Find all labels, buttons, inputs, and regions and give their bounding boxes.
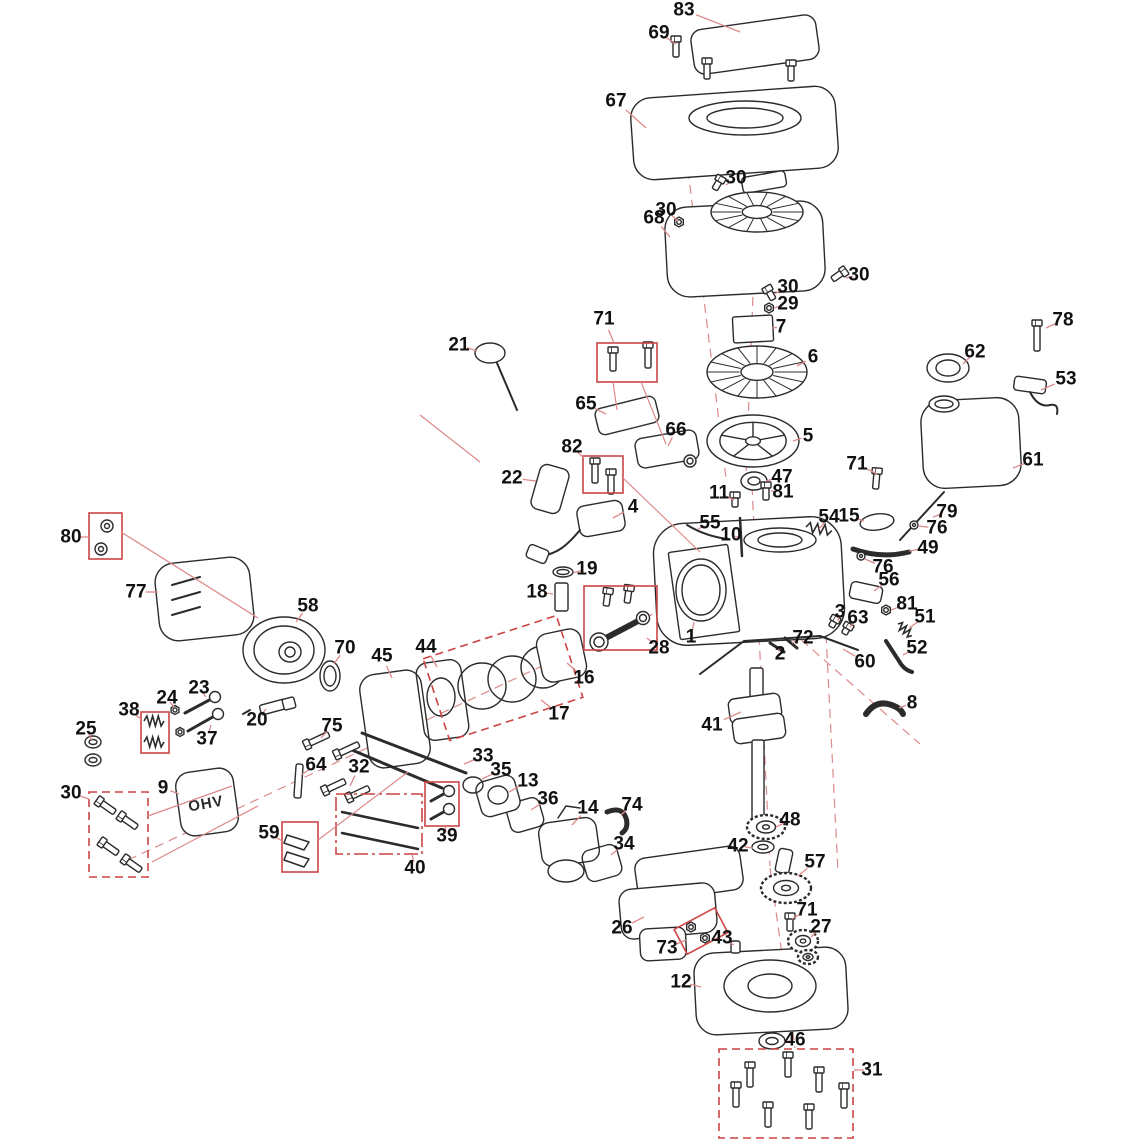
part-exhaust-gasket-70-inner xyxy=(324,666,336,686)
callout-42: 42 xyxy=(727,836,748,857)
callout-70: 70 xyxy=(334,638,355,659)
callout-22: 22 xyxy=(501,468,522,489)
part-cover-opening-inner xyxy=(707,108,783,128)
callout-6: 6 xyxy=(808,347,819,368)
callout-81-1: 81 xyxy=(772,482,794,503)
part-housing-screen-hub xyxy=(742,206,771,219)
part-camshaft-gear-57-hub xyxy=(782,885,791,890)
part-washer-42-inner xyxy=(758,845,768,850)
part-bolt-78 xyxy=(1032,320,1042,351)
diagram-canvas: OHV8369673030683030297716216566578625361… xyxy=(0,0,1144,1144)
callout-51: 51 xyxy=(914,607,936,628)
callout-10: 10 xyxy=(720,525,741,546)
part-bolt-31c xyxy=(814,1067,824,1092)
callout-64: 64 xyxy=(305,755,327,776)
part-bearing-46-inner xyxy=(766,1038,778,1045)
part-nut-80b-inner xyxy=(99,547,104,552)
part-governor-gear-27b-hub xyxy=(806,956,810,959)
part-bolt-81a xyxy=(761,482,771,500)
callout-63: 63 xyxy=(847,608,868,629)
part-nut-73a xyxy=(687,922,696,932)
part-tappet-39a-head xyxy=(444,786,455,797)
part-washer-25b-inner xyxy=(89,758,97,763)
part-crank-stub xyxy=(750,668,763,698)
callout-56: 56 xyxy=(878,570,899,591)
callout-67: 67 xyxy=(605,91,626,112)
callout-62: 62 xyxy=(964,342,985,363)
callout-20: 20 xyxy=(246,710,267,731)
callout-58: 58 xyxy=(297,596,318,617)
callout-46: 46 xyxy=(784,1030,805,1051)
part-bearing-47-inner xyxy=(748,477,760,485)
callout-24: 24 xyxy=(156,688,178,709)
part-bolt-31g xyxy=(804,1104,814,1129)
callout-21: 21 xyxy=(448,335,470,356)
callout-83: 83 xyxy=(673,0,694,21)
part-valve-23-head xyxy=(210,692,221,703)
callout-48: 48 xyxy=(779,810,800,831)
callout-80: 80 xyxy=(60,527,81,548)
exploded-parts-diagram: OHV8369673030683030297716216566578625361… xyxy=(0,0,1144,1144)
callout-65: 65 xyxy=(575,394,597,415)
part-muffler-outlet-inner xyxy=(285,647,295,657)
callout-72: 72 xyxy=(792,628,813,649)
callout-37: 37 xyxy=(196,729,217,750)
callout-16: 16 xyxy=(573,668,594,689)
callout-78: 78 xyxy=(1052,310,1073,331)
callout-68: 68 xyxy=(643,208,664,229)
callout-61: 61 xyxy=(1022,450,1044,471)
callout-74: 74 xyxy=(621,795,643,816)
callout-30-3: 30 xyxy=(848,265,869,286)
part-sump-inner-inner xyxy=(748,974,792,998)
part-nut-73b xyxy=(701,933,710,943)
part-rod-big-end-inner xyxy=(594,637,604,647)
callout-27: 27 xyxy=(810,917,831,938)
callout-1: 1 xyxy=(686,627,697,648)
part-pin-washer-19-inner xyxy=(557,570,569,575)
callout-82: 82 xyxy=(561,437,582,458)
part-dipstick-cap-21 xyxy=(475,343,505,363)
callout-71-1: 71 xyxy=(593,309,615,330)
callout-69: 69 xyxy=(648,23,669,44)
callout-4: 4 xyxy=(628,497,639,518)
callout-30-5: 30 xyxy=(60,783,81,804)
part-timing-gear-48-hub xyxy=(763,825,770,829)
callout-76-1: 76 xyxy=(926,518,947,539)
part-governor-gear-27a-hub xyxy=(800,939,805,943)
callout-55: 55 xyxy=(699,513,721,534)
callout-66: 66 xyxy=(665,420,686,441)
part-bolt-82a xyxy=(590,458,600,483)
callout-38: 38 xyxy=(118,700,139,721)
part-cylinder-bore-inner xyxy=(682,565,720,615)
callout-14: 14 xyxy=(577,798,599,819)
part-clamp-76b-inner xyxy=(860,555,863,558)
part-fuel-cap-62-inner xyxy=(936,360,960,376)
part-clamp-76a-inner xyxy=(913,524,916,527)
callout-41: 41 xyxy=(701,715,723,736)
callout-17: 17 xyxy=(548,704,569,725)
callout-35: 35 xyxy=(490,760,512,781)
callout-75: 75 xyxy=(321,716,343,737)
part-pulley-5-hub xyxy=(746,437,761,445)
callout-44: 44 xyxy=(415,637,437,658)
part-flywheel-6-hub xyxy=(741,364,773,381)
part-bolt-71a2 xyxy=(643,342,653,368)
part-bolt-31a xyxy=(783,1052,793,1077)
part-piston-pin-18 xyxy=(555,583,568,611)
callout-71-2: 71 xyxy=(846,454,868,475)
part-carb-bowl xyxy=(548,860,584,882)
part-rod-small-end-inner xyxy=(640,615,647,622)
callout-15: 15 xyxy=(838,506,860,527)
part-bolt-31d xyxy=(731,1082,741,1107)
part-nut-24b xyxy=(176,728,184,737)
callout-32: 32 xyxy=(348,757,369,778)
callout-59: 59 xyxy=(258,823,279,844)
part-valve-37-head xyxy=(213,709,224,720)
callout-26: 26 xyxy=(611,918,632,939)
part-bolt-71c xyxy=(785,913,795,931)
part-spark-plug-hex xyxy=(282,697,296,711)
part-cover-screw-2 xyxy=(786,60,796,81)
part-bolt-71a1 xyxy=(608,347,618,371)
callout-30-1: 30 xyxy=(725,168,746,189)
part-starter-cup-7 xyxy=(732,315,773,343)
callout-77: 77 xyxy=(125,582,146,603)
callout-7: 7 xyxy=(776,317,787,338)
part-bolt-69 xyxy=(671,36,681,57)
callout-12: 12 xyxy=(670,972,691,993)
part-bolt-31b xyxy=(745,1062,755,1087)
callout-53: 53 xyxy=(1055,369,1076,390)
part-bolt-31e xyxy=(839,1083,849,1108)
part-cover-screw-1 xyxy=(702,58,712,79)
callout-25: 25 xyxy=(75,719,97,740)
callout-11: 11 xyxy=(709,483,730,504)
part-crankcase-top-inner xyxy=(758,533,802,547)
part-washer-25a-inner xyxy=(89,740,97,745)
callout-13: 13 xyxy=(517,771,538,792)
part-bolt-82b xyxy=(606,469,616,494)
part-muffler-shield-77 xyxy=(153,555,256,643)
part-crankshaft-41 xyxy=(752,740,764,822)
callout-5: 5 xyxy=(803,426,814,447)
callout-73: 73 xyxy=(656,938,677,959)
callout-39: 39 xyxy=(436,826,457,847)
callout-49: 49 xyxy=(917,538,938,559)
part-tappet-39b-head xyxy=(444,804,455,815)
callout-60: 60 xyxy=(854,652,875,673)
part-bracket-66-hole-inner xyxy=(687,458,693,464)
part-tank-neck-inner xyxy=(935,400,953,408)
callout-52: 52 xyxy=(906,638,927,659)
part-bolt-31f xyxy=(763,1102,773,1127)
callout-40: 40 xyxy=(404,858,425,879)
part-pin-64 xyxy=(294,764,303,798)
callout-29: 29 xyxy=(777,294,798,315)
callout-43: 43 xyxy=(711,928,732,949)
callout-31: 31 xyxy=(861,1060,883,1081)
callout-34: 34 xyxy=(613,834,635,855)
callout-19: 19 xyxy=(576,559,597,580)
callout-36: 36 xyxy=(537,789,558,810)
callout-18: 18 xyxy=(526,582,547,603)
callout-23: 23 xyxy=(188,678,209,699)
callout-28: 28 xyxy=(648,638,669,659)
callout-54: 54 xyxy=(818,507,840,528)
part-nut-80a-inner xyxy=(105,524,110,529)
part-nut-29 xyxy=(765,303,774,313)
callout-9: 9 xyxy=(158,778,169,799)
callout-8: 8 xyxy=(907,693,918,714)
callout-2: 2 xyxy=(775,644,786,665)
callout-3: 3 xyxy=(835,602,846,623)
callout-57: 57 xyxy=(804,852,825,873)
callout-45: 45 xyxy=(371,646,393,667)
part-nut-81b xyxy=(882,605,891,615)
